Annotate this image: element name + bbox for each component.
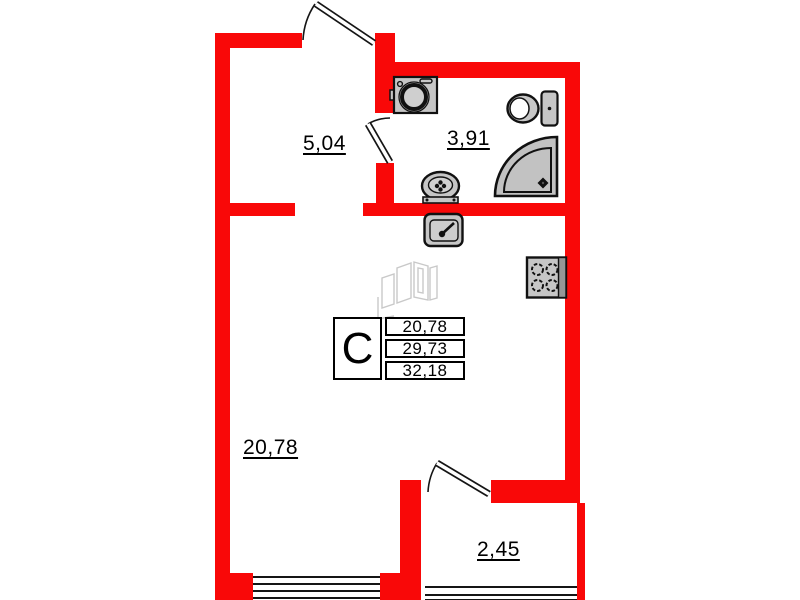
room-area-label-balcony: 2,45 xyxy=(477,538,520,562)
wall-top-left xyxy=(215,33,302,48)
wall-window-pier-right xyxy=(380,573,421,600)
area-value-row: 32,18 xyxy=(385,361,465,380)
room-area-label-hallway: 5,04 xyxy=(303,132,346,156)
toilet-icon xyxy=(508,92,558,126)
bathroom-door-swing xyxy=(368,118,390,162)
stove-icon xyxy=(527,258,566,298)
area-value-row: 20,78 xyxy=(385,317,465,336)
wall-bathroom-top xyxy=(395,62,580,78)
wall-bathroom-bottom xyxy=(363,203,580,216)
kitchen-sink-icon xyxy=(425,214,463,246)
wall-window-pier-left xyxy=(215,573,253,600)
area-value-row: 29,73 xyxy=(385,339,465,358)
entrance-door-swing xyxy=(303,4,374,43)
wall-hall-divider xyxy=(230,203,295,216)
wall-balcony-right xyxy=(577,503,585,600)
room-area-label-living: 20,78 xyxy=(243,436,298,460)
wall-balcony-top xyxy=(491,480,580,503)
balcony-door-swing xyxy=(428,463,489,494)
unit-type-badge: С xyxy=(333,317,382,380)
unit-area-rows: 20,78 29,73 32,18 xyxy=(385,317,465,380)
wall-right xyxy=(565,62,580,503)
unit-info-box: С 20,78 29,73 32,18 xyxy=(333,317,465,380)
wall-left xyxy=(215,33,230,600)
floor-plan: 5,04 3,91 20,78 2,45 С 20,78 29,73 32,18 xyxy=(0,0,800,600)
unit-3d-pictogram-icon xyxy=(378,262,437,319)
bathroom-sink-icon xyxy=(422,172,459,203)
corner-shower-icon xyxy=(495,137,557,196)
room-area-label-bathroom: 3,91 xyxy=(447,127,490,151)
washing-machine-icon xyxy=(390,77,437,113)
wall-entry-pier xyxy=(375,33,395,113)
